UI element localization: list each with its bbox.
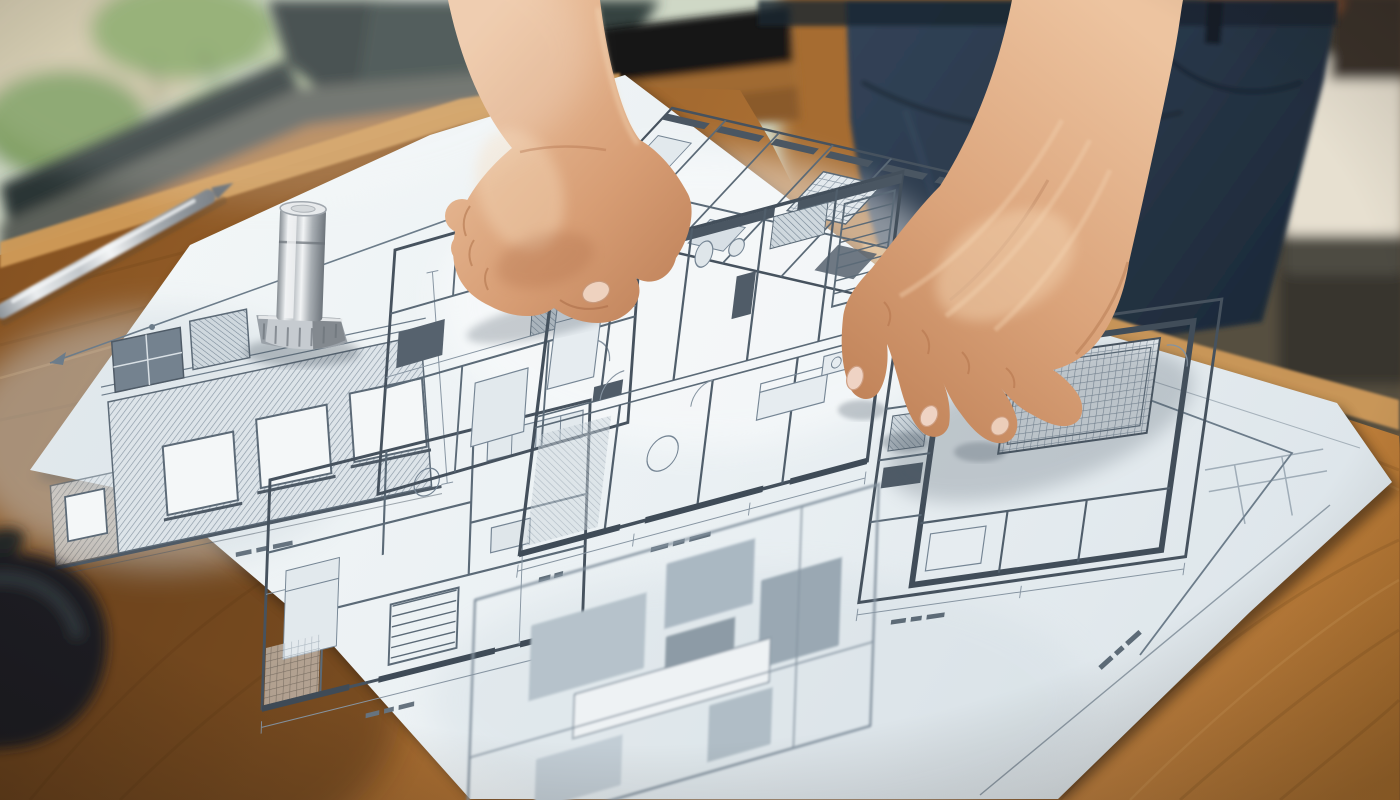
scene-svg [0,0,1400,800]
vignette [0,0,1400,800]
photo-stage [0,0,1400,800]
